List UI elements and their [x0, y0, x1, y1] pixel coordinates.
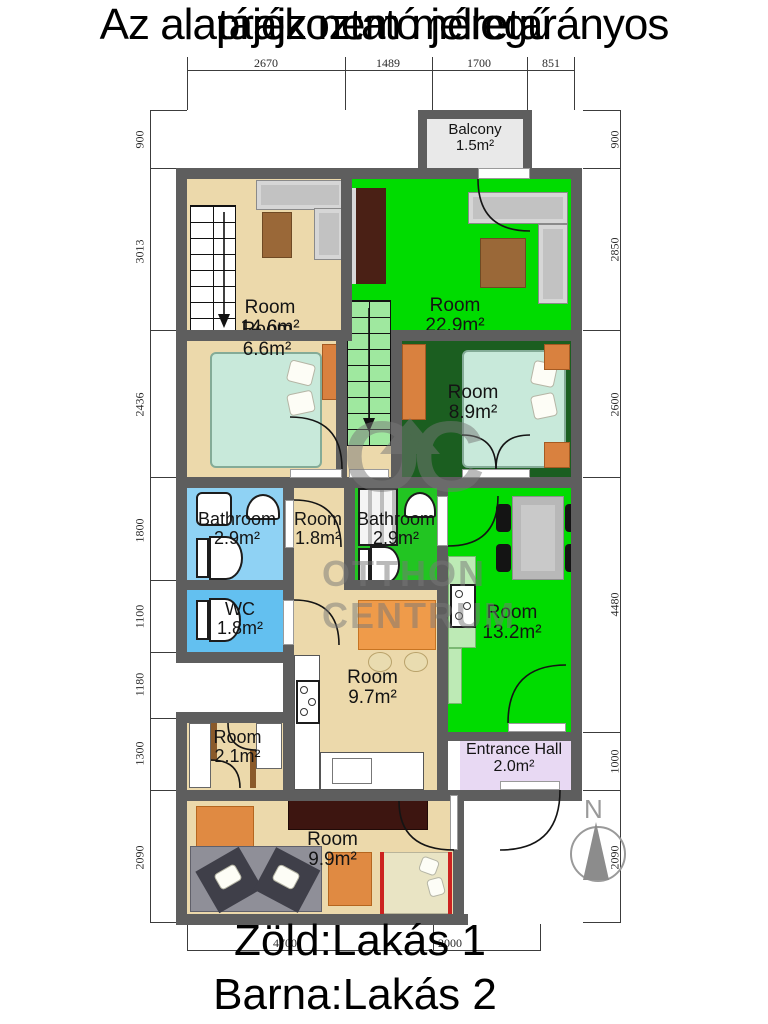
sofa [314, 208, 344, 260]
nightstand [544, 442, 570, 468]
wardrobe [402, 344, 426, 420]
wall [391, 330, 582, 341]
dim-label: 3013 [133, 222, 148, 282]
nightstand [544, 344, 570, 370]
door-threshold [462, 469, 530, 478]
dim-label: 2850 [608, 220, 623, 280]
wall [391, 341, 402, 477]
balcony-wall [418, 110, 532, 119]
wall [341, 168, 352, 341]
dim-tick [150, 110, 187, 111]
dim-tick [432, 57, 433, 110]
bed-rail [448, 852, 452, 914]
coffee-table [480, 238, 526, 288]
door-leaf [450, 795, 458, 850]
room-label-bathroom-left: Bathroom2.9m² [182, 510, 292, 548]
pillow [530, 392, 558, 420]
wall [176, 330, 347, 341]
room-label-bedroom-right: Room8.9m² [428, 383, 518, 423]
dim-label: 2090 [133, 828, 148, 888]
sink [332, 758, 372, 784]
dim-label: 1000 [608, 732, 623, 792]
dim-label: 851 [521, 56, 581, 71]
toilet-bowl [370, 546, 400, 584]
floor-plan-page: Az alaprajz nem méretarányos tájékoztató… [0, 0, 768, 1024]
wall [176, 580, 294, 590]
dim-label: 1700 [449, 56, 509, 71]
wall [176, 790, 582, 801]
sofa [468, 192, 568, 224]
room-label-bathroom-right: Bathroom2.9m² [341, 510, 451, 548]
page-subtitle: tájékoztató jellegű [0, 0, 768, 50]
burner [300, 686, 308, 694]
dim-tick [583, 922, 620, 923]
stairs-lower [347, 300, 391, 446]
dim-label: 4480 [608, 575, 623, 635]
room-label-kitchen: Room9.7m² [330, 668, 415, 708]
chair [496, 504, 511, 532]
door-leaf [283, 600, 294, 645]
dim-tick [345, 57, 346, 110]
legend-apartment2: Barna:Lakás 2 [155, 970, 555, 1020]
toilet-tank [358, 548, 370, 582]
balcony-wall [418, 110, 427, 168]
chair [496, 544, 511, 572]
room-label-wc: WC1.8m² [200, 600, 280, 638]
door-threshold [508, 723, 566, 732]
dim-label: 1300 [133, 724, 148, 784]
dining-table [512, 496, 564, 580]
room-label-dining: Room13.2m² [462, 603, 562, 643]
dim-label: 2670 [236, 56, 296, 71]
door-threshold [349, 469, 389, 478]
burner [300, 708, 308, 716]
bed-rail [380, 852, 384, 914]
room-label-balcony: Balcony1.5m² [435, 122, 515, 154]
door-threshold [478, 168, 530, 179]
wardrobe [352, 188, 386, 284]
dim-label: 1489 [358, 56, 418, 71]
wall [448, 732, 582, 741]
room-label-closet: Room2.1m² [200, 728, 275, 766]
wall [176, 712, 294, 723]
dim-label: 1180 [133, 655, 148, 715]
wall [176, 477, 582, 488]
coffee-table [262, 212, 292, 258]
door-threshold [500, 781, 560, 790]
sofa [538, 224, 568, 304]
wall [176, 712, 187, 925]
dim-label: 900 [608, 110, 623, 170]
wall [336, 341, 347, 477]
wall [176, 652, 294, 663]
kitchen-counter [448, 648, 462, 704]
dim-line-left [150, 110, 151, 923]
burner [308, 698, 316, 706]
room-label-living-bottom: Room9.9m² [290, 830, 375, 870]
dim-tick [583, 477, 620, 478]
dim-label: 2436 [133, 375, 148, 435]
room-label-entrance: Entrance Hall2.0m² [452, 742, 576, 776]
dim-label: 1100 [133, 587, 148, 647]
dim-label: 1800 [133, 501, 148, 561]
dim-label: 900 [133, 110, 148, 170]
compass-north-label: N [584, 794, 603, 825]
dim-tick [583, 330, 620, 331]
burner [455, 590, 463, 598]
dim-tick [187, 57, 188, 110]
legend-apartment1: Zöld:Lakás 1 [160, 916, 560, 966]
balcony-wall [523, 110, 532, 168]
compass-needle-icon [583, 822, 609, 880]
wall [344, 580, 448, 590]
door-threshold [290, 469, 342, 478]
kitchen-table [358, 600, 436, 650]
dim-label: 2600 [608, 375, 623, 435]
sofa [256, 180, 344, 210]
